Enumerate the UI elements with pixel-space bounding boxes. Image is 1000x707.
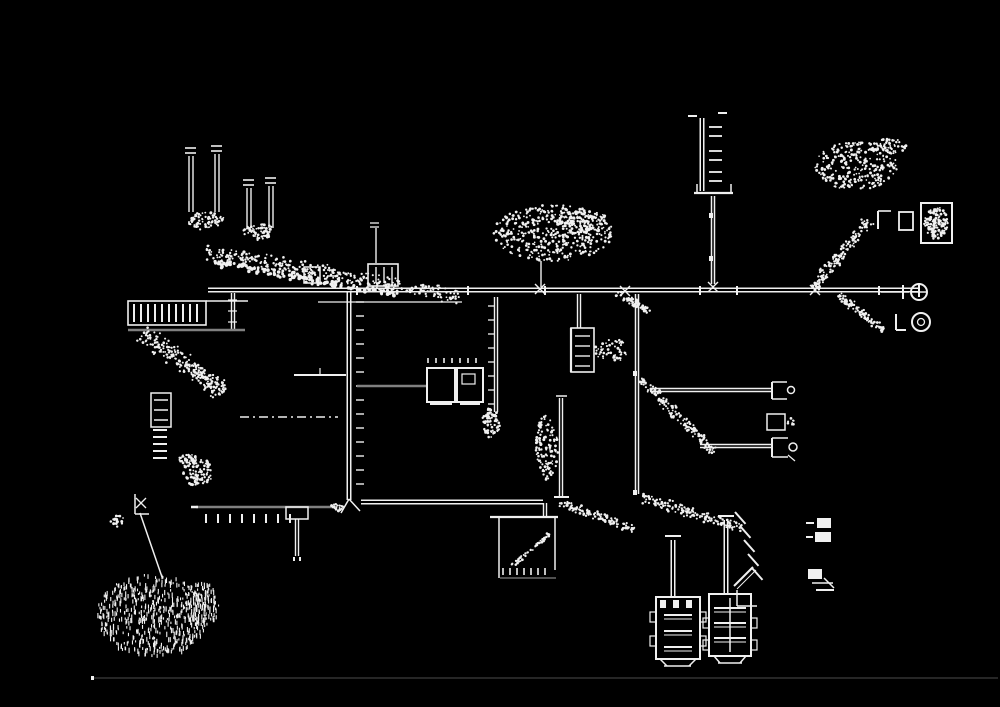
trunk-junction-3: [708, 282, 718, 292]
left-connector-rungs: [154, 400, 168, 420]
pin-terminal-1: [788, 387, 795, 394]
top-connector-lead: [712, 196, 715, 284]
u2-cap-b: [265, 178, 276, 183]
rope-northeast: [811, 218, 874, 290]
bottom-rule-speck: [91, 676, 94, 680]
right-branch: [636, 294, 639, 494]
inline-connector-2-rungs: [575, 336, 590, 366]
corrugated-loom: [128, 301, 206, 325]
rope-southeast-short: [837, 293, 885, 333]
rope-to-southeast: [559, 501, 636, 533]
wiring-harness-diagram: [0, 0, 1000, 707]
connector-a-foot-l: [660, 659, 667, 666]
center-branch-rungs: [356, 302, 364, 484]
u-connector-2-rail-b: [269, 186, 273, 228]
top-connector-rungs-1: [709, 127, 722, 136]
lacing-marks: [735, 512, 763, 580]
inline-connector-2-label-noise: [594, 339, 627, 362]
connector-b-foot-l: [714, 656, 720, 663]
relay-box-1: [427, 368, 455, 402]
u-connector-2-rail-a: [247, 188, 251, 228]
u1-cap-a: [185, 148, 196, 153]
taped-bundle-center: [493, 204, 613, 262]
stub-lead-1: [650, 389, 772, 392]
lower-horizontal-run: [361, 500, 543, 504]
mid-bottom-left-lead: [296, 519, 299, 556]
left-bracket-x: [136, 498, 146, 508]
clip-icon-1-block-b: [815, 532, 831, 542]
top-connector-rungs-2: [709, 151, 722, 160]
top-connector-rungs-3: [709, 172, 722, 181]
left-connector-stack: [153, 430, 167, 458]
right-block-glyph-noise: [923, 207, 949, 240]
u-connector-1-rail-a: [189, 156, 193, 212]
corrugated-loom-ribs: [134, 304, 197, 322]
branch-497-wrap: [482, 407, 501, 438]
u2-cap-a: [243, 180, 254, 185]
drop-233: [232, 293, 235, 331]
u1-cap-b: [211, 146, 222, 151]
connector-a-pads: [663, 600, 689, 608]
relay-box-2: [457, 368, 483, 402]
center-branch: [347, 292, 351, 500]
u-connector-1-rail-b: [215, 154, 219, 212]
diagram-stage: [0, 0, 1000, 707]
clip-icon-1-block-a: [817, 518, 831, 528]
connector-b-lead: [724, 520, 728, 594]
relay-tab-row: [428, 358, 476, 363]
pin-terminal-2: [789, 443, 797, 451]
branch-560: [560, 398, 563, 496]
drop-376-cap: [370, 223, 379, 227]
relay-box-2-inner: [462, 374, 475, 384]
mid-bottom-left-feet: [294, 557, 300, 561]
mid-bracket: [767, 414, 785, 430]
connector-a-lead: [671, 540, 675, 597]
clip-icon-2-block: [808, 569, 822, 579]
drop-233-hatch: [228, 300, 237, 322]
branch-560-noise: [535, 415, 559, 481]
u2-dot: [242, 250, 245, 253]
left-edge-specks: [110, 515, 124, 528]
taped-bundle-bottomleft: [97, 574, 206, 658]
ring-terminal-2-inner: [918, 319, 925, 326]
lead-to-bottom-bundle: [140, 513, 162, 577]
right-branch-top-knot: [615, 291, 651, 314]
lower-run-corner: [544, 503, 547, 517]
top-connector-rails: [700, 118, 704, 191]
mid-bracket-dots: [787, 417, 795, 426]
loom-down-bundle: [136, 326, 227, 398]
branch-497: [495, 297, 498, 412]
center-y-right: [349, 499, 360, 511]
right-small-connector: [899, 212, 913, 230]
inline-connector-2-stem: [578, 294, 581, 328]
bracket-box-pins: [503, 568, 545, 575]
stitch-row: [206, 514, 290, 523]
ring-terminal-2: [912, 313, 930, 331]
stub2-tick: [788, 455, 795, 461]
bracket-box-hatch: [511, 532, 551, 566]
connector-a-rungs: [664, 615, 692, 647]
connector-a-foot-r: [689, 659, 696, 666]
taped-bundle-topright-tail: [869, 138, 907, 155]
connector-b-foot-r: [740, 656, 746, 663]
u1-wrap: [188, 211, 224, 230]
